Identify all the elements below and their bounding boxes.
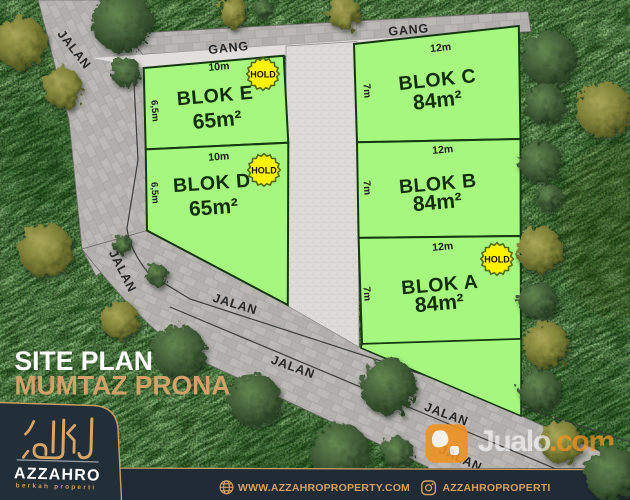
svg-text:WWW.AZZAHROPROPERTY.COM: WWW.AZZAHROPROPERTY.COM <box>238 482 410 494</box>
svg-text:AZZAHROPROPERTI: AZZAHROPROPERTI <box>443 482 551 494</box>
svg-text:84m²: 84m² <box>412 189 463 216</box>
svg-text:65m²: 65m² <box>188 195 239 221</box>
svg-text:12m: 12m <box>432 240 454 254</box>
svg-text:6,5m: 6,5m <box>148 182 160 204</box>
svg-text:12m: 12m <box>432 143 454 157</box>
svg-text:10m: 10m <box>208 150 230 163</box>
svg-text:84m²: 84m² <box>414 290 465 317</box>
svg-text:65m²: 65m² <box>192 107 243 134</box>
svg-text:MUMTAZ PRONA: MUMTAZ PRONA <box>15 371 231 401</box>
svg-text:Jualo: Jualo <box>478 425 551 458</box>
svg-text:7m: 7m <box>361 180 373 195</box>
svg-text:7m: 7m <box>361 83 373 98</box>
svg-text:HOLD: HOLD <box>250 70 276 80</box>
svg-text:HOLD: HOLD <box>251 166 277 176</box>
svg-text:6,5m: 6,5m <box>148 100 160 122</box>
svg-text:7m: 7m <box>361 286 373 301</box>
svg-text:HOLD: HOLD <box>484 255 510 265</box>
svg-text:10m: 10m <box>208 60 230 74</box>
svg-text:12m: 12m <box>430 41 452 55</box>
